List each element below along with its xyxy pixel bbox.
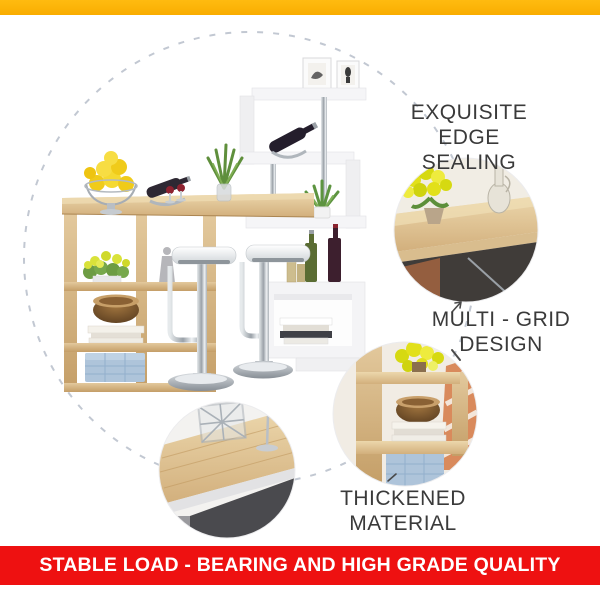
inset-edge-sealing-photo xyxy=(394,157,538,302)
vase-plant xyxy=(208,145,242,201)
book-stack xyxy=(88,326,144,343)
table-wine-rack xyxy=(145,173,192,199)
inset-multi-grid-photo xyxy=(333,341,477,486)
callout-thickened-material: THICKENED MATERIAL xyxy=(288,486,518,536)
callout-multi-grid: MULTI - GRID DESIGN xyxy=(425,307,577,357)
bottom-banner: STABLE LOAD - BEARING AND HIGH GRADE QUA… xyxy=(0,546,600,585)
inset-thickened-material-photo xyxy=(159,390,295,538)
storage-box xyxy=(386,454,444,486)
callout-edge-sealing: EXQUISITE EDGE SEALING xyxy=(393,100,545,175)
wooden-bar-table xyxy=(64,212,216,392)
wine-bottle-holder xyxy=(267,119,319,154)
storage-box xyxy=(85,353,145,382)
callout-edge-sealing-line2: EDGE SEALING xyxy=(393,125,545,175)
photo-frames xyxy=(303,58,359,91)
callout-multi-grid-line2: DESIGN xyxy=(425,332,577,357)
wire-basket xyxy=(198,402,246,442)
bar-stool xyxy=(168,247,236,391)
callout-multi-grid-line1: MULTI - GRID xyxy=(425,307,577,332)
books-in-shelf xyxy=(280,318,332,344)
bronze-bowl xyxy=(396,396,440,423)
flower-pot xyxy=(83,251,130,285)
bronze-bowl xyxy=(93,295,139,324)
book-stack xyxy=(392,422,446,441)
callout-thickened-material-text: THICKENED MATERIAL xyxy=(288,486,518,536)
banner-text: STABLE LOAD - BEARING AND HIGH GRADE QUA… xyxy=(39,554,560,577)
callout-edge-sealing-line1: EXQUISITE xyxy=(393,100,545,125)
